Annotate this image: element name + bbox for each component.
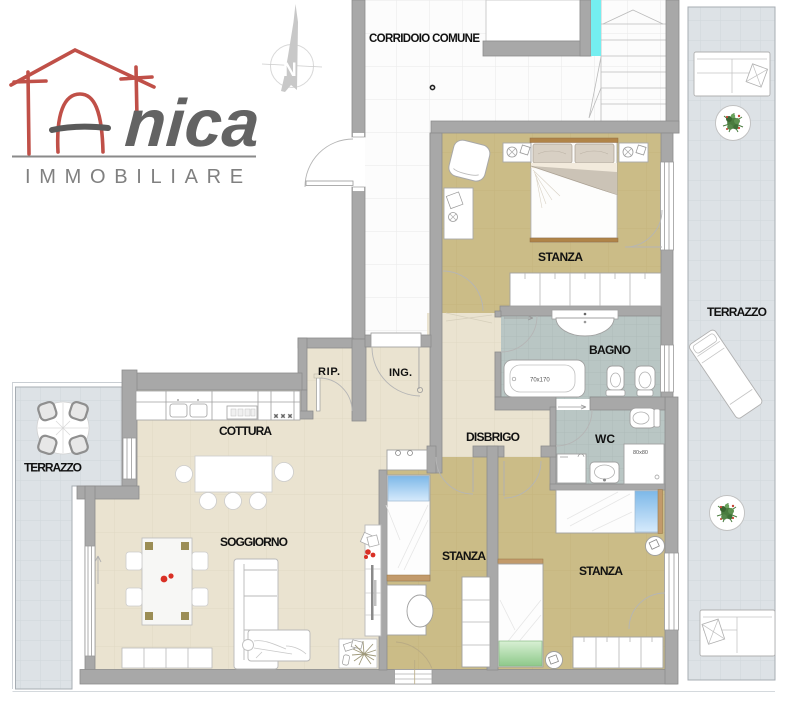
- svg-text:TERRAZZO: TERRAZZO: [707, 305, 767, 319]
- svg-text:SOGGIORNO: SOGGIORNO: [220, 535, 288, 549]
- svg-text:STANZA: STANZA: [538, 250, 583, 264]
- svg-text:CORRIDOIO COMUNE: CORRIDOIO COMUNE: [369, 33, 480, 45]
- svg-text:DISBRIGO: DISBRIGO: [466, 430, 520, 444]
- svg-text:COTTURA: COTTURA: [219, 424, 272, 438]
- svg-text:nica: nica: [123, 86, 262, 161]
- svg-text:RIP.: RIP.: [318, 366, 340, 378]
- svg-text:BAGNO: BAGNO: [589, 343, 631, 357]
- svg-text:STANZA: STANZA: [579, 564, 623, 578]
- svg-text:IMMOBILIARE: IMMOBILIARE: [25, 166, 252, 188]
- svg-text:TERRAZZO: TERRAZZO: [24, 461, 82, 475]
- svg-text:N: N: [283, 60, 297, 81]
- svg-text:WC: WC: [595, 432, 615, 446]
- svg-text:80x80: 80x80: [633, 450, 648, 456]
- svg-text:STANZA: STANZA: [442, 549, 486, 563]
- svg-text:ING.: ING.: [389, 367, 412, 379]
- svg-text:70x170: 70x170: [530, 378, 550, 384]
